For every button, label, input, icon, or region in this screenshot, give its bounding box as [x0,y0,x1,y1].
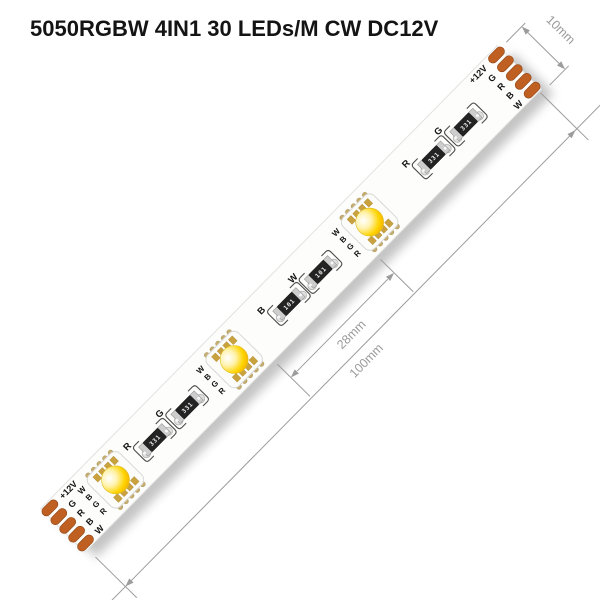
led-gap-label: 28mm [334,317,368,352]
strip-width-label: 10mm [543,13,578,47]
product-diagram: 5050RGBW 4IN1 30 LEDs/M CW DC12V [0,0,600,600]
dimension-section-length: 100mm [72,69,600,600]
section-length-label: 100mm [347,341,386,381]
led-strip-diagram: +12V G R B W +12V G R B W [0,0,600,600]
